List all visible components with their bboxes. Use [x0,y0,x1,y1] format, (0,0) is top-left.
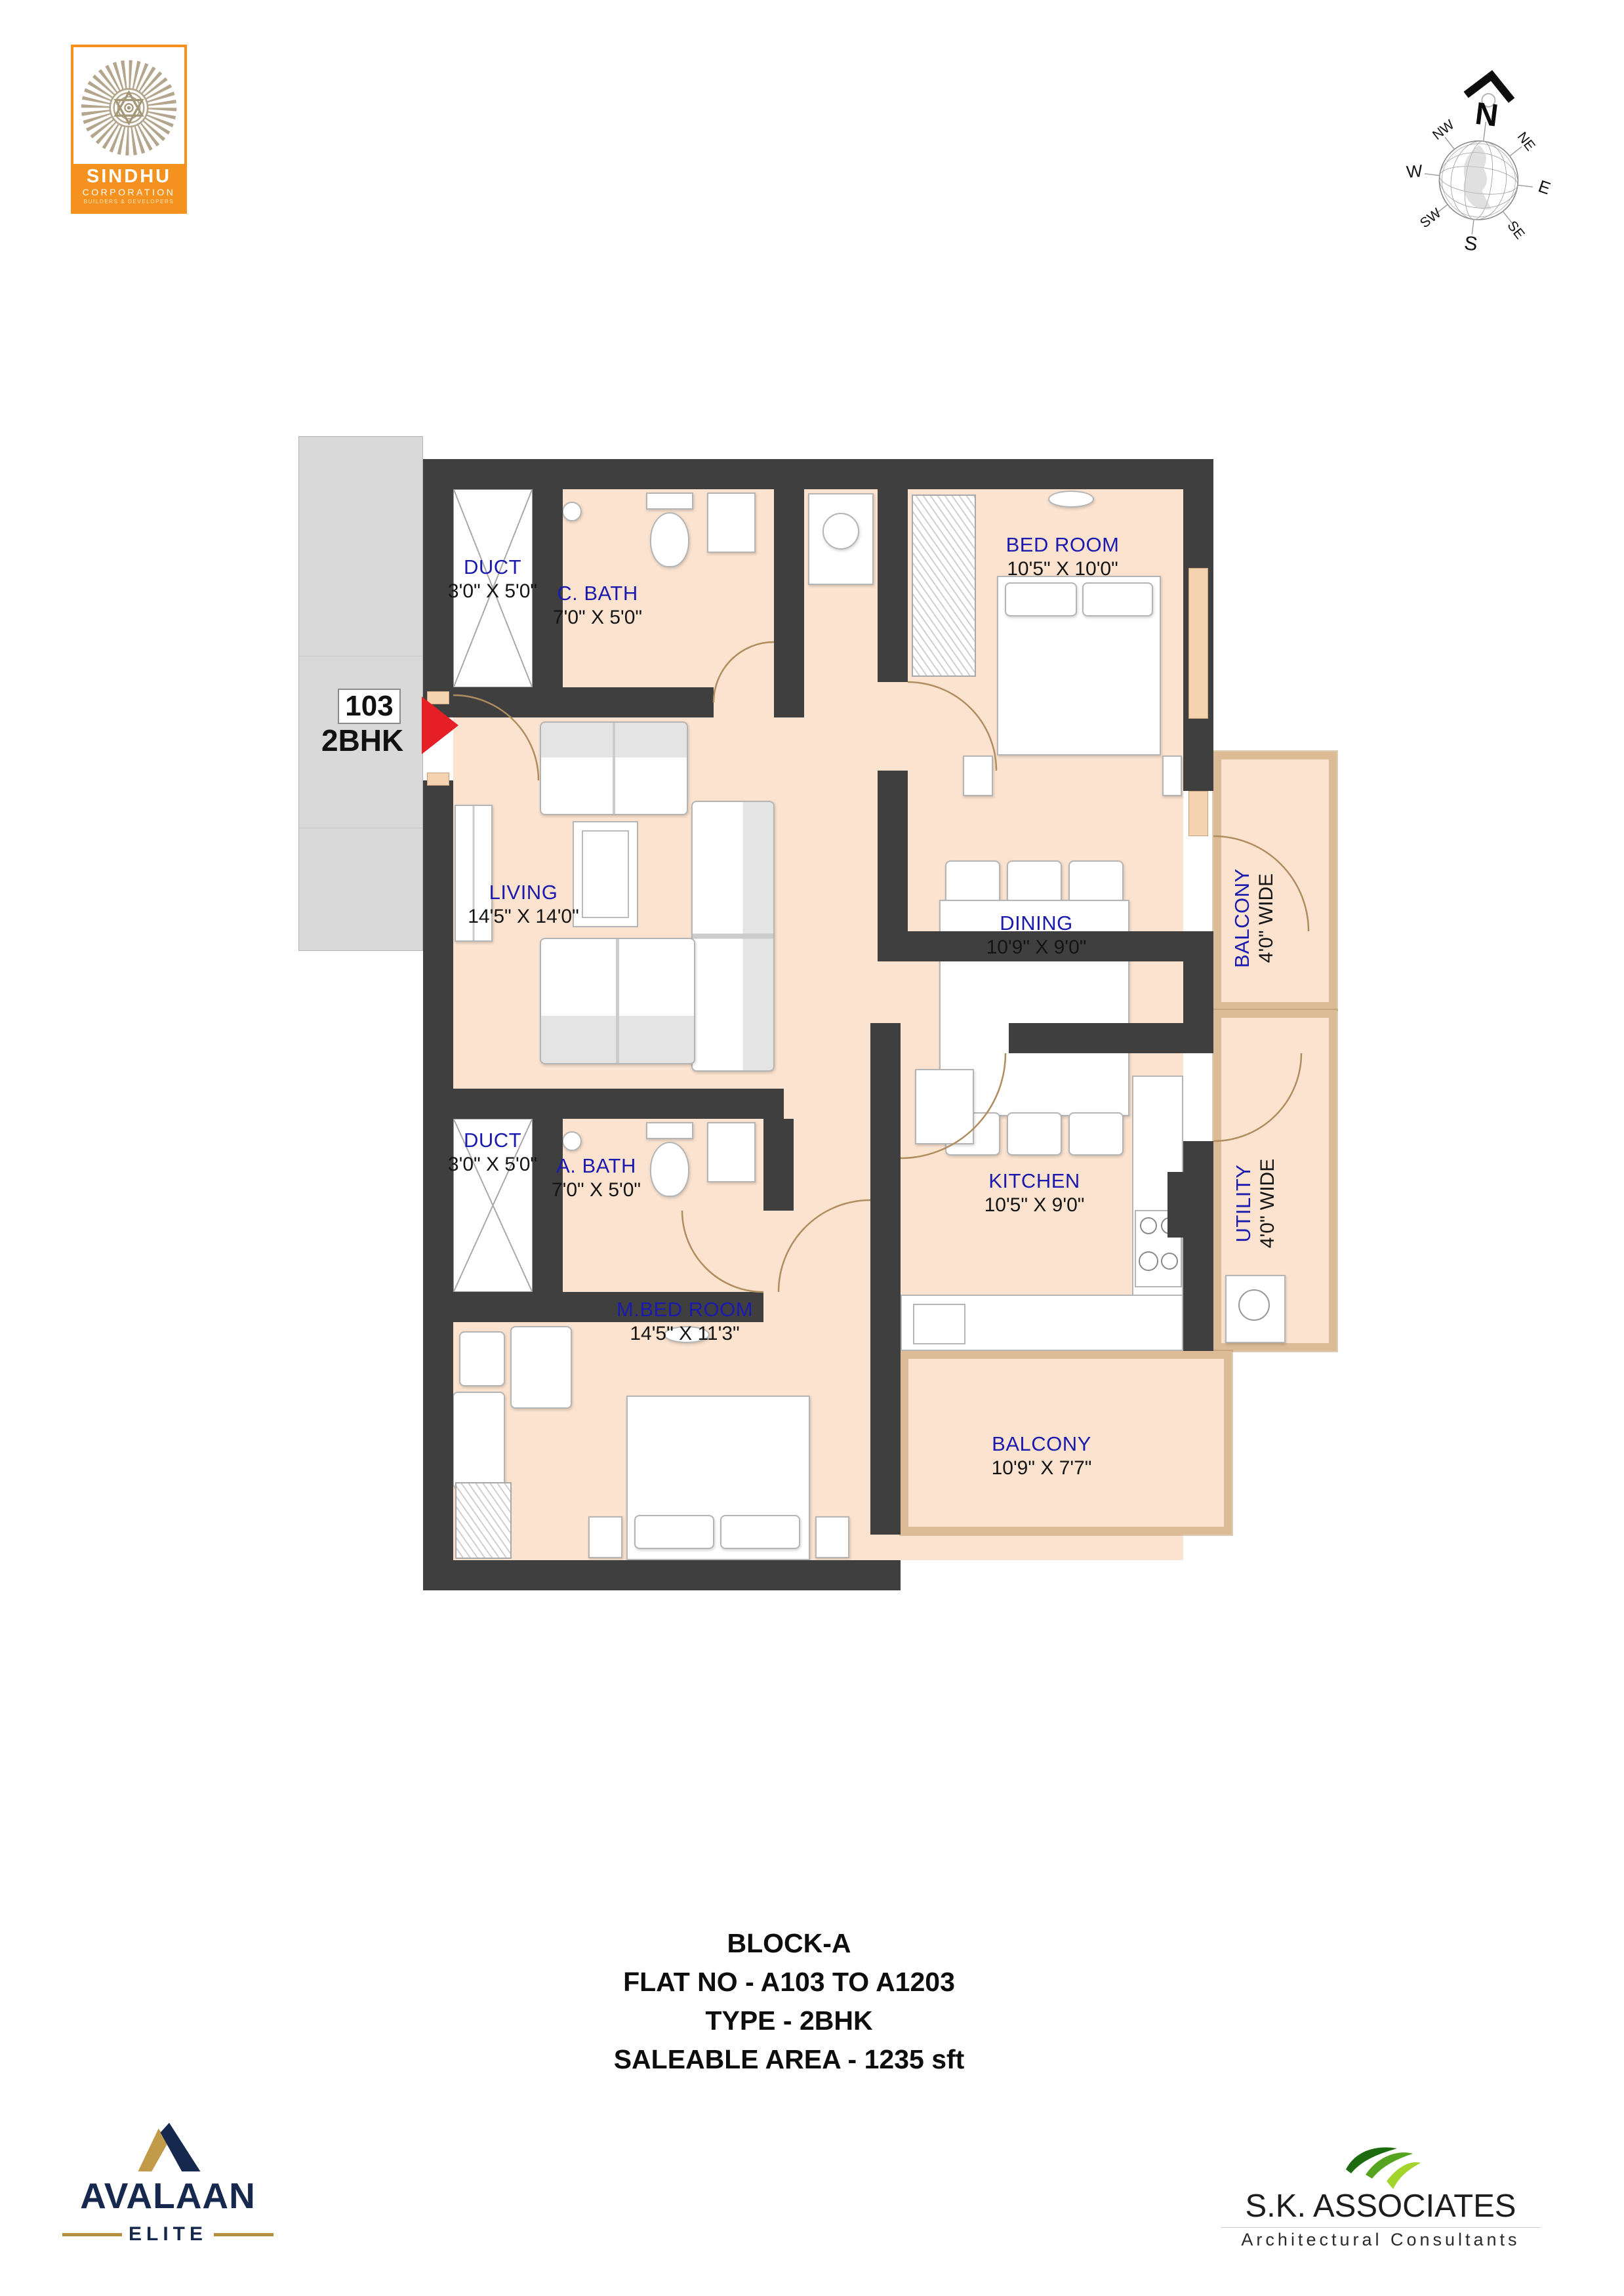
flat-number-badge: 103 [338,689,401,724]
entrance-arrow-icon [422,696,458,754]
room-label-utility: UTILITY 4'0" WIDE [1231,1159,1280,1248]
sindhu-tagline: BUILDERS & DEVELOPERS [73,197,184,207]
room-label-m-bed-room: M.BED ROOM 14'5" X 11'3" [617,1297,753,1346]
compass-e: E [1536,176,1553,198]
gold-line [62,2233,122,2236]
compass-s: S [1463,232,1479,255]
unit-details: BLOCK-A FLAT NO - A103 TO A1203 TYPE - 2… [461,1924,1117,2079]
sk-associates-name: S.K. ASSOCIATES [1217,2188,1545,2225]
room-label-a-bath: A. BATH 7'0" X 5'0" [552,1154,641,1202]
room-label-kitchen: KITCHEN 10'5" X 9'0" [985,1169,1085,1217]
room-label-bed-room: BED ROOM 10'5" X 10'0" [1006,533,1120,581]
sindhu-corporation: CORPORATION [73,188,184,197]
utility-door-arc [1213,1053,1301,1141]
saleable-area: SALEABLE AREA - 1235 sft [461,2040,1117,2079]
room-label-c-bath: C. BATH 7'0" X 5'0" [553,581,642,630]
room-label-duct-bottom: DUCT 3'0" X 5'0" [448,1128,537,1177]
gold-line [214,2233,274,2236]
north-arrow-icon [1466,73,1514,100]
entrance-door-arc [453,695,538,780]
kitchen-platform-block [1167,1172,1206,1238]
compass-w: W [1406,161,1424,182]
bedroom-door-arc [908,682,996,771]
a-bath-door-arc [682,1211,763,1292]
sindhu-sunburst-icon [73,47,184,164]
compass-nw: NW [1430,117,1457,143]
floor-plan-page: SINDHU CORPORATION BUILDERS & DEVELOPERS… [0,0,1624,2296]
compass-rose: N NW NE W E SW SE S [1377,59,1581,269]
room-label-balcony-right: BALCONY 4'0" WIDE [1230,868,1278,968]
room-label-duct-top: DUCT 3'0" X 5'0" [448,555,537,603]
kitchen-door-arc [901,1053,1005,1158]
room-label-living: LIVING 14'5" X 14'0" [468,880,579,929]
flat-type-label: 2BHK [321,723,403,758]
compass-se: SE [1504,218,1527,242]
unit-type: TYPE - 2BHK [461,2002,1117,2040]
sindhu-name: SINDHU [73,165,184,188]
room-label-dining: DINING 10'9" X 9'0" [986,911,1087,959]
c-bath-door-arc [714,642,774,702]
sk-associates-subtitle: Architectural Consultants [1217,2230,1545,2250]
compass-sw: SW [1417,205,1444,231]
avalaan-elite-row: ELITE [62,2223,274,2246]
sindhu-logo-text: SINDHU CORPORATION BUILDERS & DEVELOPERS [73,164,184,211]
m-bedroom-door-arc [779,1200,870,1292]
compass-n: N [1473,96,1500,134]
block-name: BLOCK-A [461,1924,1117,1963]
avalaan-tier: ELITE [122,2223,214,2246]
sk-leaf-icon [1343,2143,1426,2192]
room-label-balcony-bottom: BALCONY 10'9" X 7'7" [992,1432,1092,1480]
sk-divider-line [1221,2227,1540,2228]
avalaan-logo-name: AVALAAN [66,2175,270,2217]
avalaan-mountain-icon [133,2122,201,2172]
sindhu-logo: SINDHU CORPORATION BUILDERS & DEVELOPERS [71,45,187,214]
flat-no-range: FLAT NO - A103 TO A1203 [461,1963,1117,2002]
